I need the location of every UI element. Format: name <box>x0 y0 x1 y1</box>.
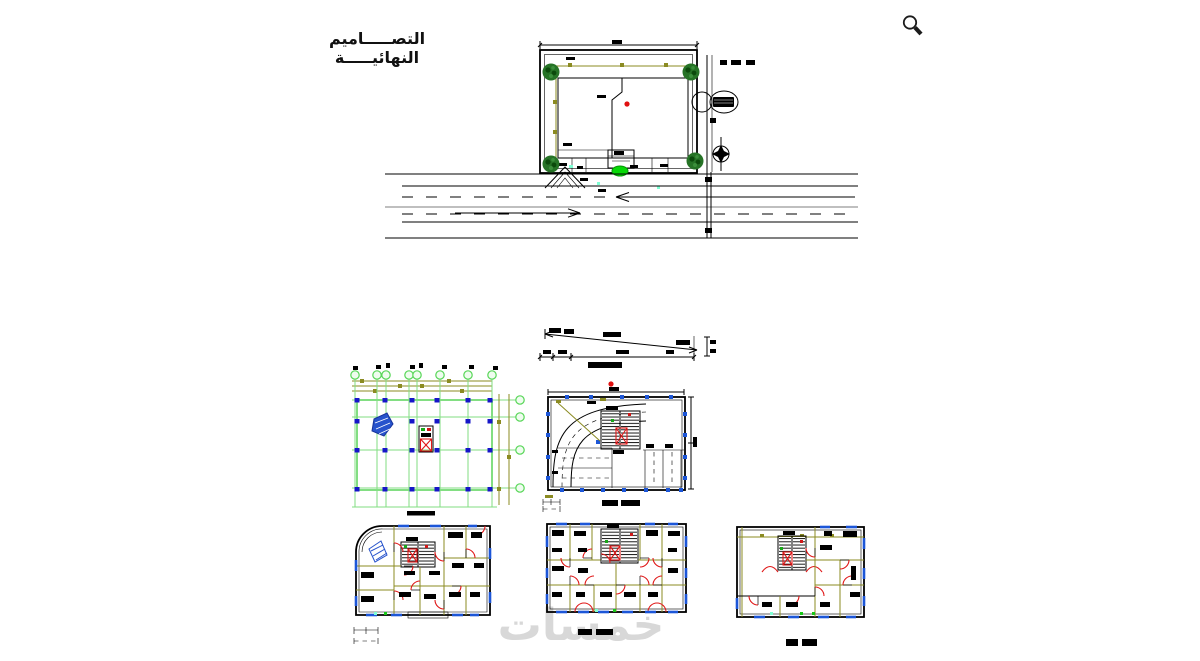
plan-title-block <box>802 639 817 646</box>
red-marker-dot <box>624 101 629 106</box>
dimension-text <box>612 40 622 44</box>
door <box>806 548 815 557</box>
elevator-symbol <box>419 426 433 452</box>
door-arc <box>806 567 822 573</box>
legend-marks <box>543 495 560 512</box>
section-title-block <box>588 362 622 368</box>
partition-walls <box>356 526 490 615</box>
plan-title-block <box>786 639 798 646</box>
typical-floor-plan-drawing <box>547 524 686 635</box>
columns-layout-drawing <box>351 363 524 516</box>
door <box>749 596 758 605</box>
door-arc <box>575 603 593 612</box>
door <box>466 549 475 558</box>
door <box>640 576 649 585</box>
plan-title-block <box>596 629 613 635</box>
tree-icon <box>543 156 560 173</box>
columns <box>355 398 493 492</box>
first-floor-plan-drawing <box>354 526 490 644</box>
stair-shape <box>372 413 393 436</box>
door <box>640 558 649 567</box>
tree-icon <box>543 64 560 81</box>
door <box>653 576 662 585</box>
tree-icon <box>687 153 704 170</box>
red-marker-dot <box>608 381 613 386</box>
road-direction-arrow-right <box>455 209 580 217</box>
street-name-label <box>720 60 755 65</box>
plan-title-block <box>407 511 435 516</box>
door <box>815 587 824 596</box>
cad-sheet <box>0 0 1200 661</box>
stair-core <box>401 537 435 567</box>
plan-title-block <box>602 500 618 506</box>
stair-core <box>601 524 638 563</box>
door <box>435 600 444 609</box>
door <box>843 576 852 585</box>
slope-label <box>603 332 621 337</box>
ramp-hatch <box>369 541 387 562</box>
detail-bubble <box>692 91 738 113</box>
door <box>435 552 444 561</box>
street-drawing <box>385 172 858 238</box>
door-arc <box>762 567 778 573</box>
roof-plan-drawing <box>737 527 864 646</box>
ramp-section-drawing <box>538 328 716 368</box>
ground-floor-plan-drawing <box>543 381 697 512</box>
door <box>653 558 662 567</box>
windows <box>356 526 490 615</box>
door <box>394 543 403 552</box>
door <box>561 558 570 567</box>
stair-core <box>601 406 640 454</box>
road-direction-arrow-left <box>616 193 855 202</box>
dimension-marks <box>354 627 378 644</box>
magnifier-icon[interactable] <box>904 16 921 34</box>
page-title: التصـــــاميم النهائيـــــة <box>294 29 460 53</box>
door <box>570 576 579 585</box>
door <box>840 560 849 569</box>
door <box>585 576 594 585</box>
north-arrow-icon <box>712 137 730 171</box>
plan-title-block <box>578 629 592 635</box>
door-arc <box>648 603 666 612</box>
building-outline <box>558 78 688 158</box>
door <box>616 585 625 594</box>
tree-icon <box>683 64 700 81</box>
site-plan-drawing <box>538 40 755 192</box>
drawing-canvas: خمسات التصـــــاميم النهائيـــــة <box>0 0 1200 661</box>
plan-title-block <box>621 500 640 506</box>
